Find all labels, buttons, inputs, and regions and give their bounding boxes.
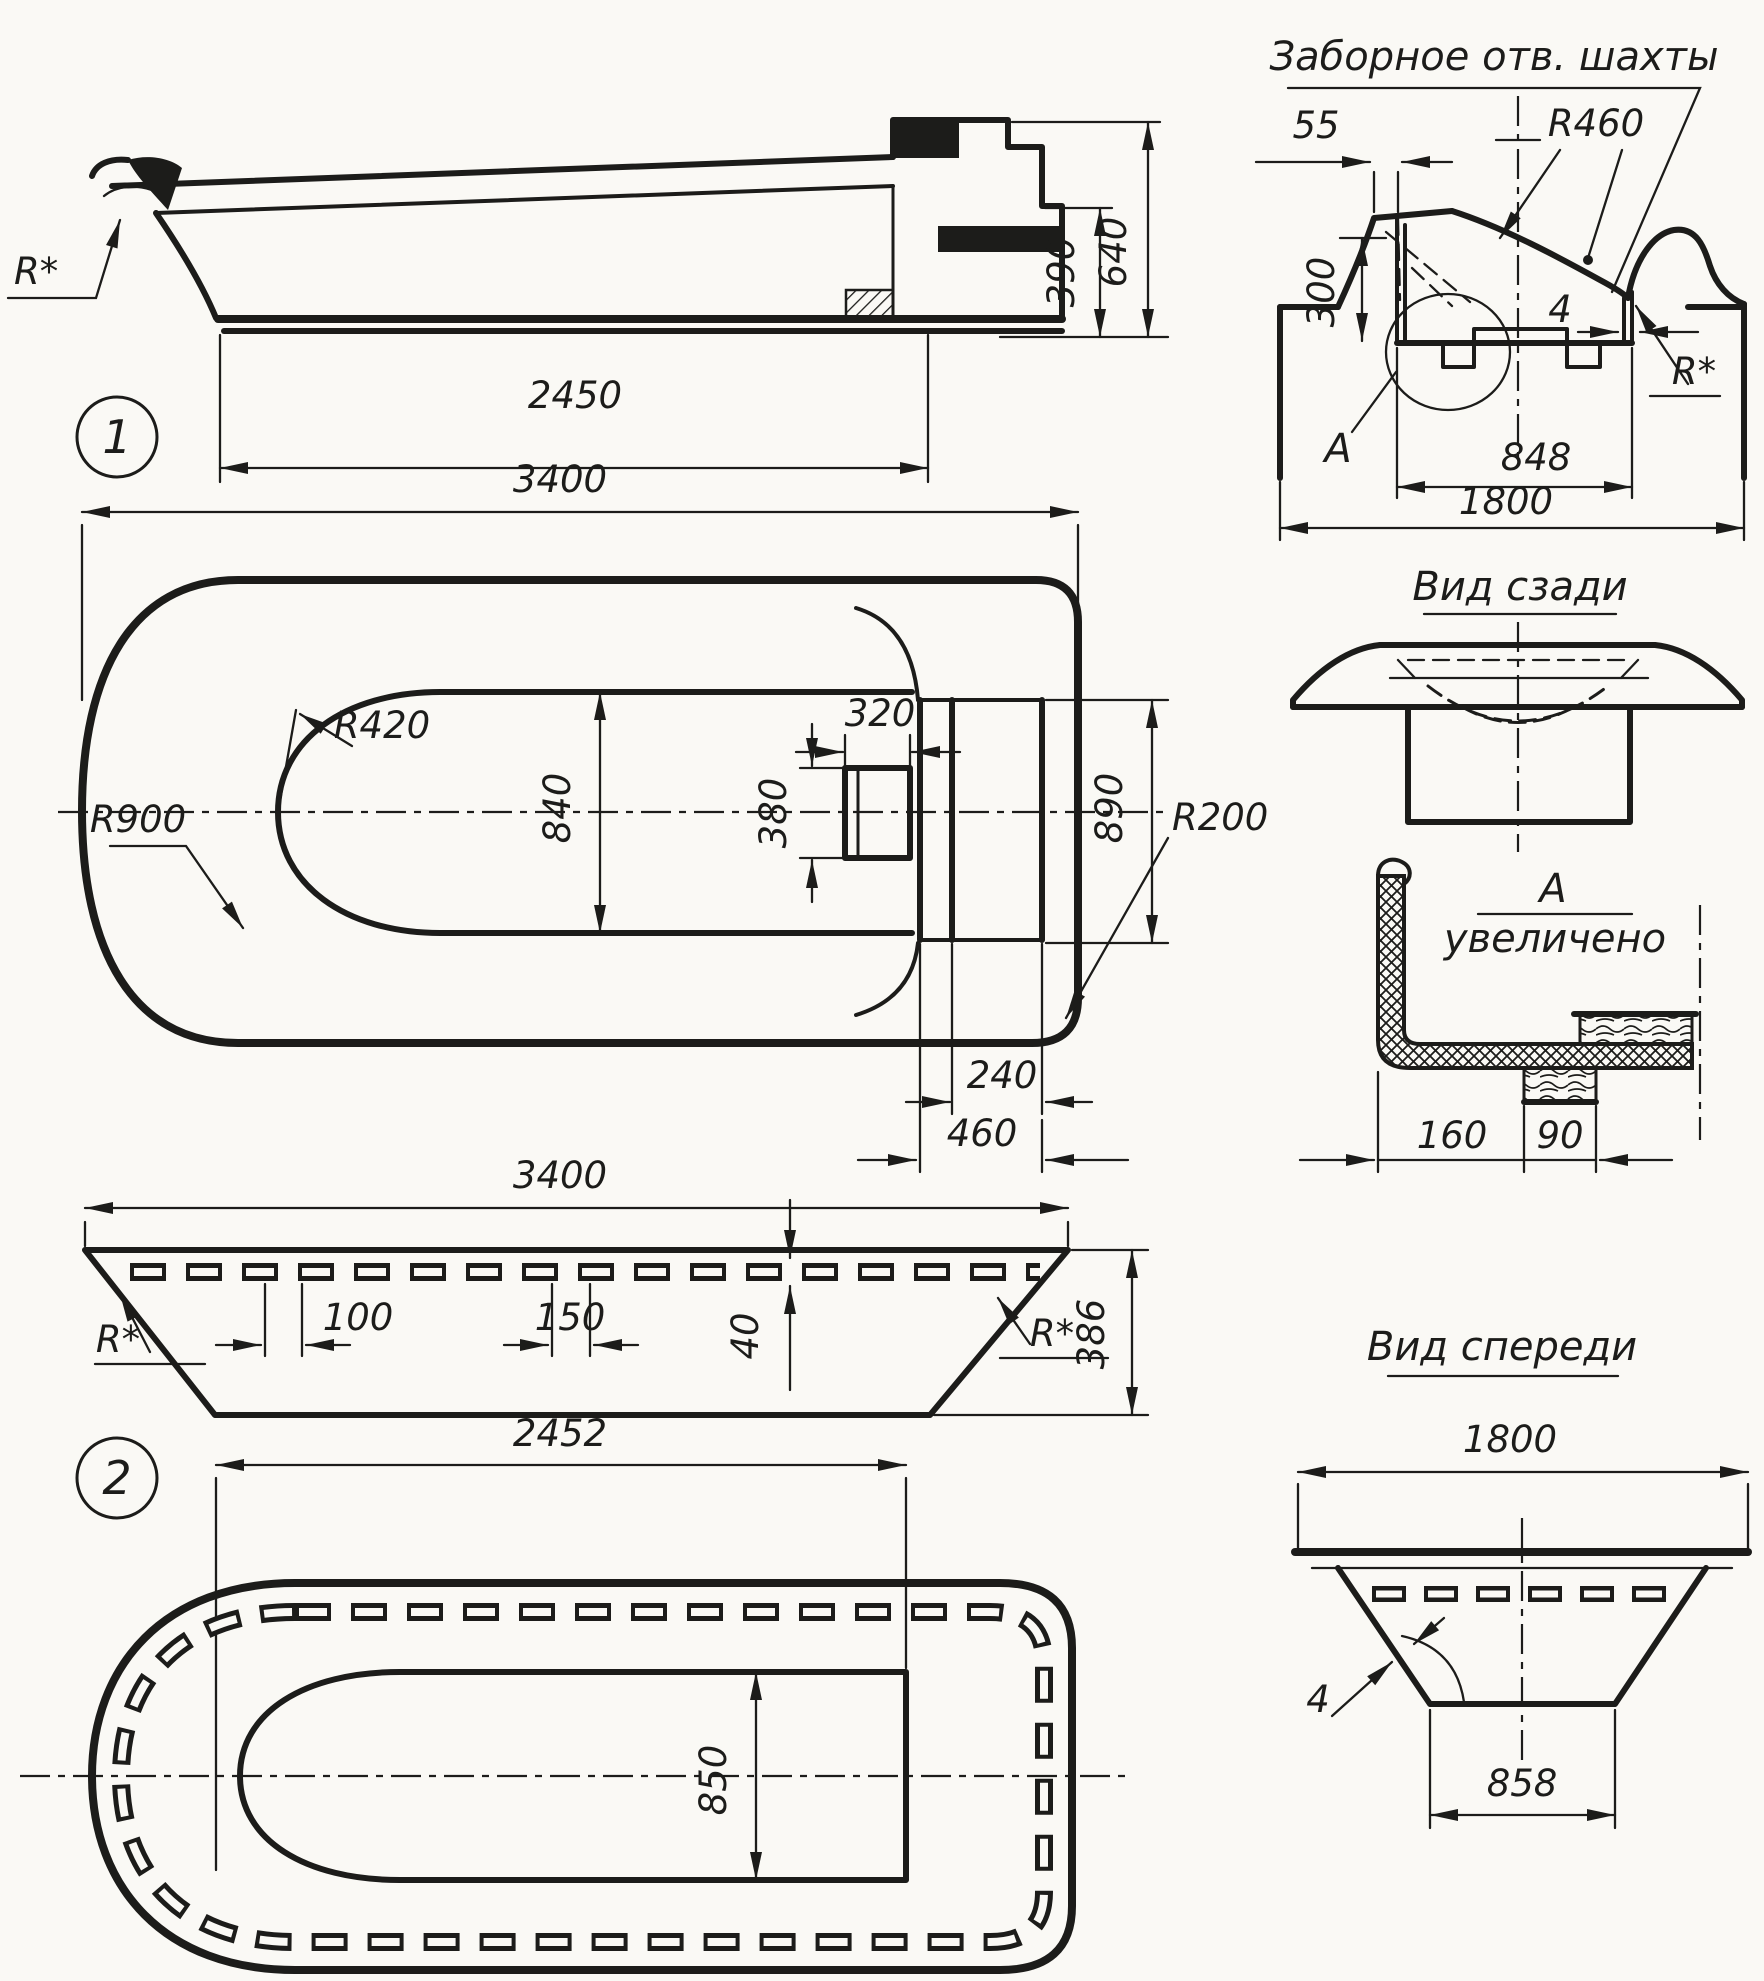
view-rear: Вид сзади [1293,564,1742,852]
dim-4-label: 4 [1548,288,1572,331]
bell-r460-curve [1452,211,1628,298]
detail-a-circle [1386,294,1510,410]
dim-2452-label: 2452 [513,1412,607,1455]
fan-frame-profile [1430,329,1615,367]
dim-3400b-ext [85,1222,1068,1246]
radius-note: R* [14,250,58,293]
dim-460-label: 460 [947,1112,1018,1155]
detail-a-leader [1352,372,1396,432]
r200-label: R200 [1172,796,1268,839]
front-title: Вид спереди [1367,1324,1637,1370]
dim-4b-a2 [1414,1618,1444,1644]
r900-label: R900 [90,798,186,841]
front-bend-arc [1402,1636,1464,1702]
detail-a-label: А [1536,866,1566,912]
technical-drawing: R* 2450 390 640 1 3400 320 [0,0,1764,1981]
dim-320-ext [845,735,910,766]
r460-leader-dot [1583,255,1593,265]
dim-240-label: 240 [967,1054,1038,1097]
r420-label: R420 [334,704,430,747]
deck-lower-line [156,186,893,213]
view-intake-section: Заборное отв. шахты А 55 R460 R* [1256,34,1744,540]
tower-fill-top [893,120,959,158]
dim-100-label: 100 [323,1296,394,1339]
rear-title: Вид сзади [1412,564,1627,610]
deck-top-line [112,157,893,186]
keel-front [156,213,216,318]
radius-right-note: R* [1030,1312,1074,1355]
detail-a-view: А увеличено 160 90 [1300,860,1700,1172]
part-2-number: 2 [102,1451,131,1505]
stern-bay-walls [920,700,1042,940]
detail-a-sub: увеличено [1443,916,1666,962]
dim-40-label: 40 [724,1312,767,1359]
stern-bay-caps [918,700,1042,940]
dim-850-label: 850 [692,1745,735,1816]
dim-640-label: 640 [1092,217,1135,288]
view-side-2: 3400 R* R* 100 150 40 386 2 [77,1154,1148,1518]
intake-title: Заборное отв. шахты [1269,34,1718,80]
radius-left-note: R* [96,1318,140,1361]
dim-840-label: 840 [536,773,579,844]
r460-label: R460 [1548,102,1644,145]
view-plan-2: 2452 850 [20,1412,1125,1970]
dim-4b-label: 4 [1306,1678,1330,1721]
hull-bow-curl [92,160,128,176]
wood-block-bottom [1524,1068,1596,1102]
blueprint-page: R* 2450 390 640 1 3400 320 [0,0,1764,1981]
dim-55-ext [1374,172,1398,212]
view-plan-1: 3400 320 380 840 890 R420 R900 [58,458,1268,1172]
dim-386-label: 386 [1070,1299,1113,1370]
dim-890-label: 890 [1088,773,1131,844]
part-1-number: 1 [102,410,131,464]
dim-55-label: 55 [1292,104,1339,147]
view-front: Вид спереди 1800 4 858 [1295,1324,1748,1828]
dim-380-label: 380 [752,778,795,849]
dim-3400-ext [82,525,1078,700]
wood-block-top [1580,1014,1692,1044]
dim-3400-label: 3400 [513,458,607,501]
dim-848-label: 848 [1501,436,1572,479]
radius-star-note: R* [1672,350,1716,393]
dim-300-label: 300 [1300,257,1343,328]
dim-160-label: 160 [1417,1114,1488,1157]
dim-320-label: 320 [845,692,916,735]
detail-a-ref: А [1321,426,1351,472]
dim-1800b-label: 1800 [1463,1418,1557,1461]
dim-1800-label: 1800 [1459,480,1553,523]
dim-858-label: 858 [1487,1762,1558,1805]
dim-390-label: 390 [1040,237,1083,308]
r460-leader-1 [1500,150,1560,238]
dim-3400b-label: 3400 [513,1154,607,1197]
view-side-1: R* 2450 390 640 1 [8,120,1168,482]
engine-mount-hatch [846,290,893,318]
r460-leader-2 [1588,150,1622,258]
dim-2450-label: 2450 [528,374,622,417]
dim-150-label: 150 [535,1296,606,1339]
dim-4b-a1 [1332,1662,1392,1716]
r900-leader [110,846,243,928]
right-flare [1628,230,1744,304]
dim-90-label: 90 [1536,1114,1583,1157]
